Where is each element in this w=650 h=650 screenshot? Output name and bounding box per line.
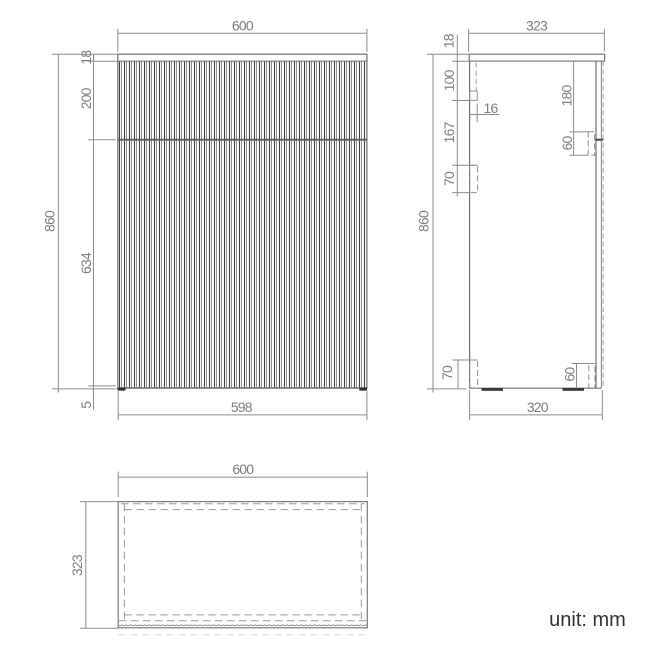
svg-text:200: 200 xyxy=(78,87,94,109)
svg-text:18: 18 xyxy=(78,50,94,65)
svg-text:unit: mm: unit: mm xyxy=(549,609,626,631)
svg-text:70: 70 xyxy=(441,171,457,186)
svg-text:180: 180 xyxy=(558,85,574,107)
svg-text:60: 60 xyxy=(562,367,578,382)
svg-text:860: 860 xyxy=(416,210,432,232)
svg-text:860: 860 xyxy=(42,210,58,232)
svg-text:70: 70 xyxy=(439,365,455,380)
svg-text:5: 5 xyxy=(78,401,94,409)
svg-text:100: 100 xyxy=(441,69,457,91)
svg-text:16: 16 xyxy=(484,100,499,116)
svg-text:600: 600 xyxy=(232,18,254,34)
svg-text:320: 320 xyxy=(527,399,549,415)
svg-text:60: 60 xyxy=(559,136,575,151)
svg-text:634: 634 xyxy=(78,252,94,274)
svg-text:598: 598 xyxy=(231,399,253,415)
svg-text:600: 600 xyxy=(232,461,254,477)
svg-text:323: 323 xyxy=(69,554,85,576)
svg-text:323: 323 xyxy=(526,18,548,34)
svg-text:18: 18 xyxy=(441,33,457,48)
svg-text:167: 167 xyxy=(441,121,457,143)
